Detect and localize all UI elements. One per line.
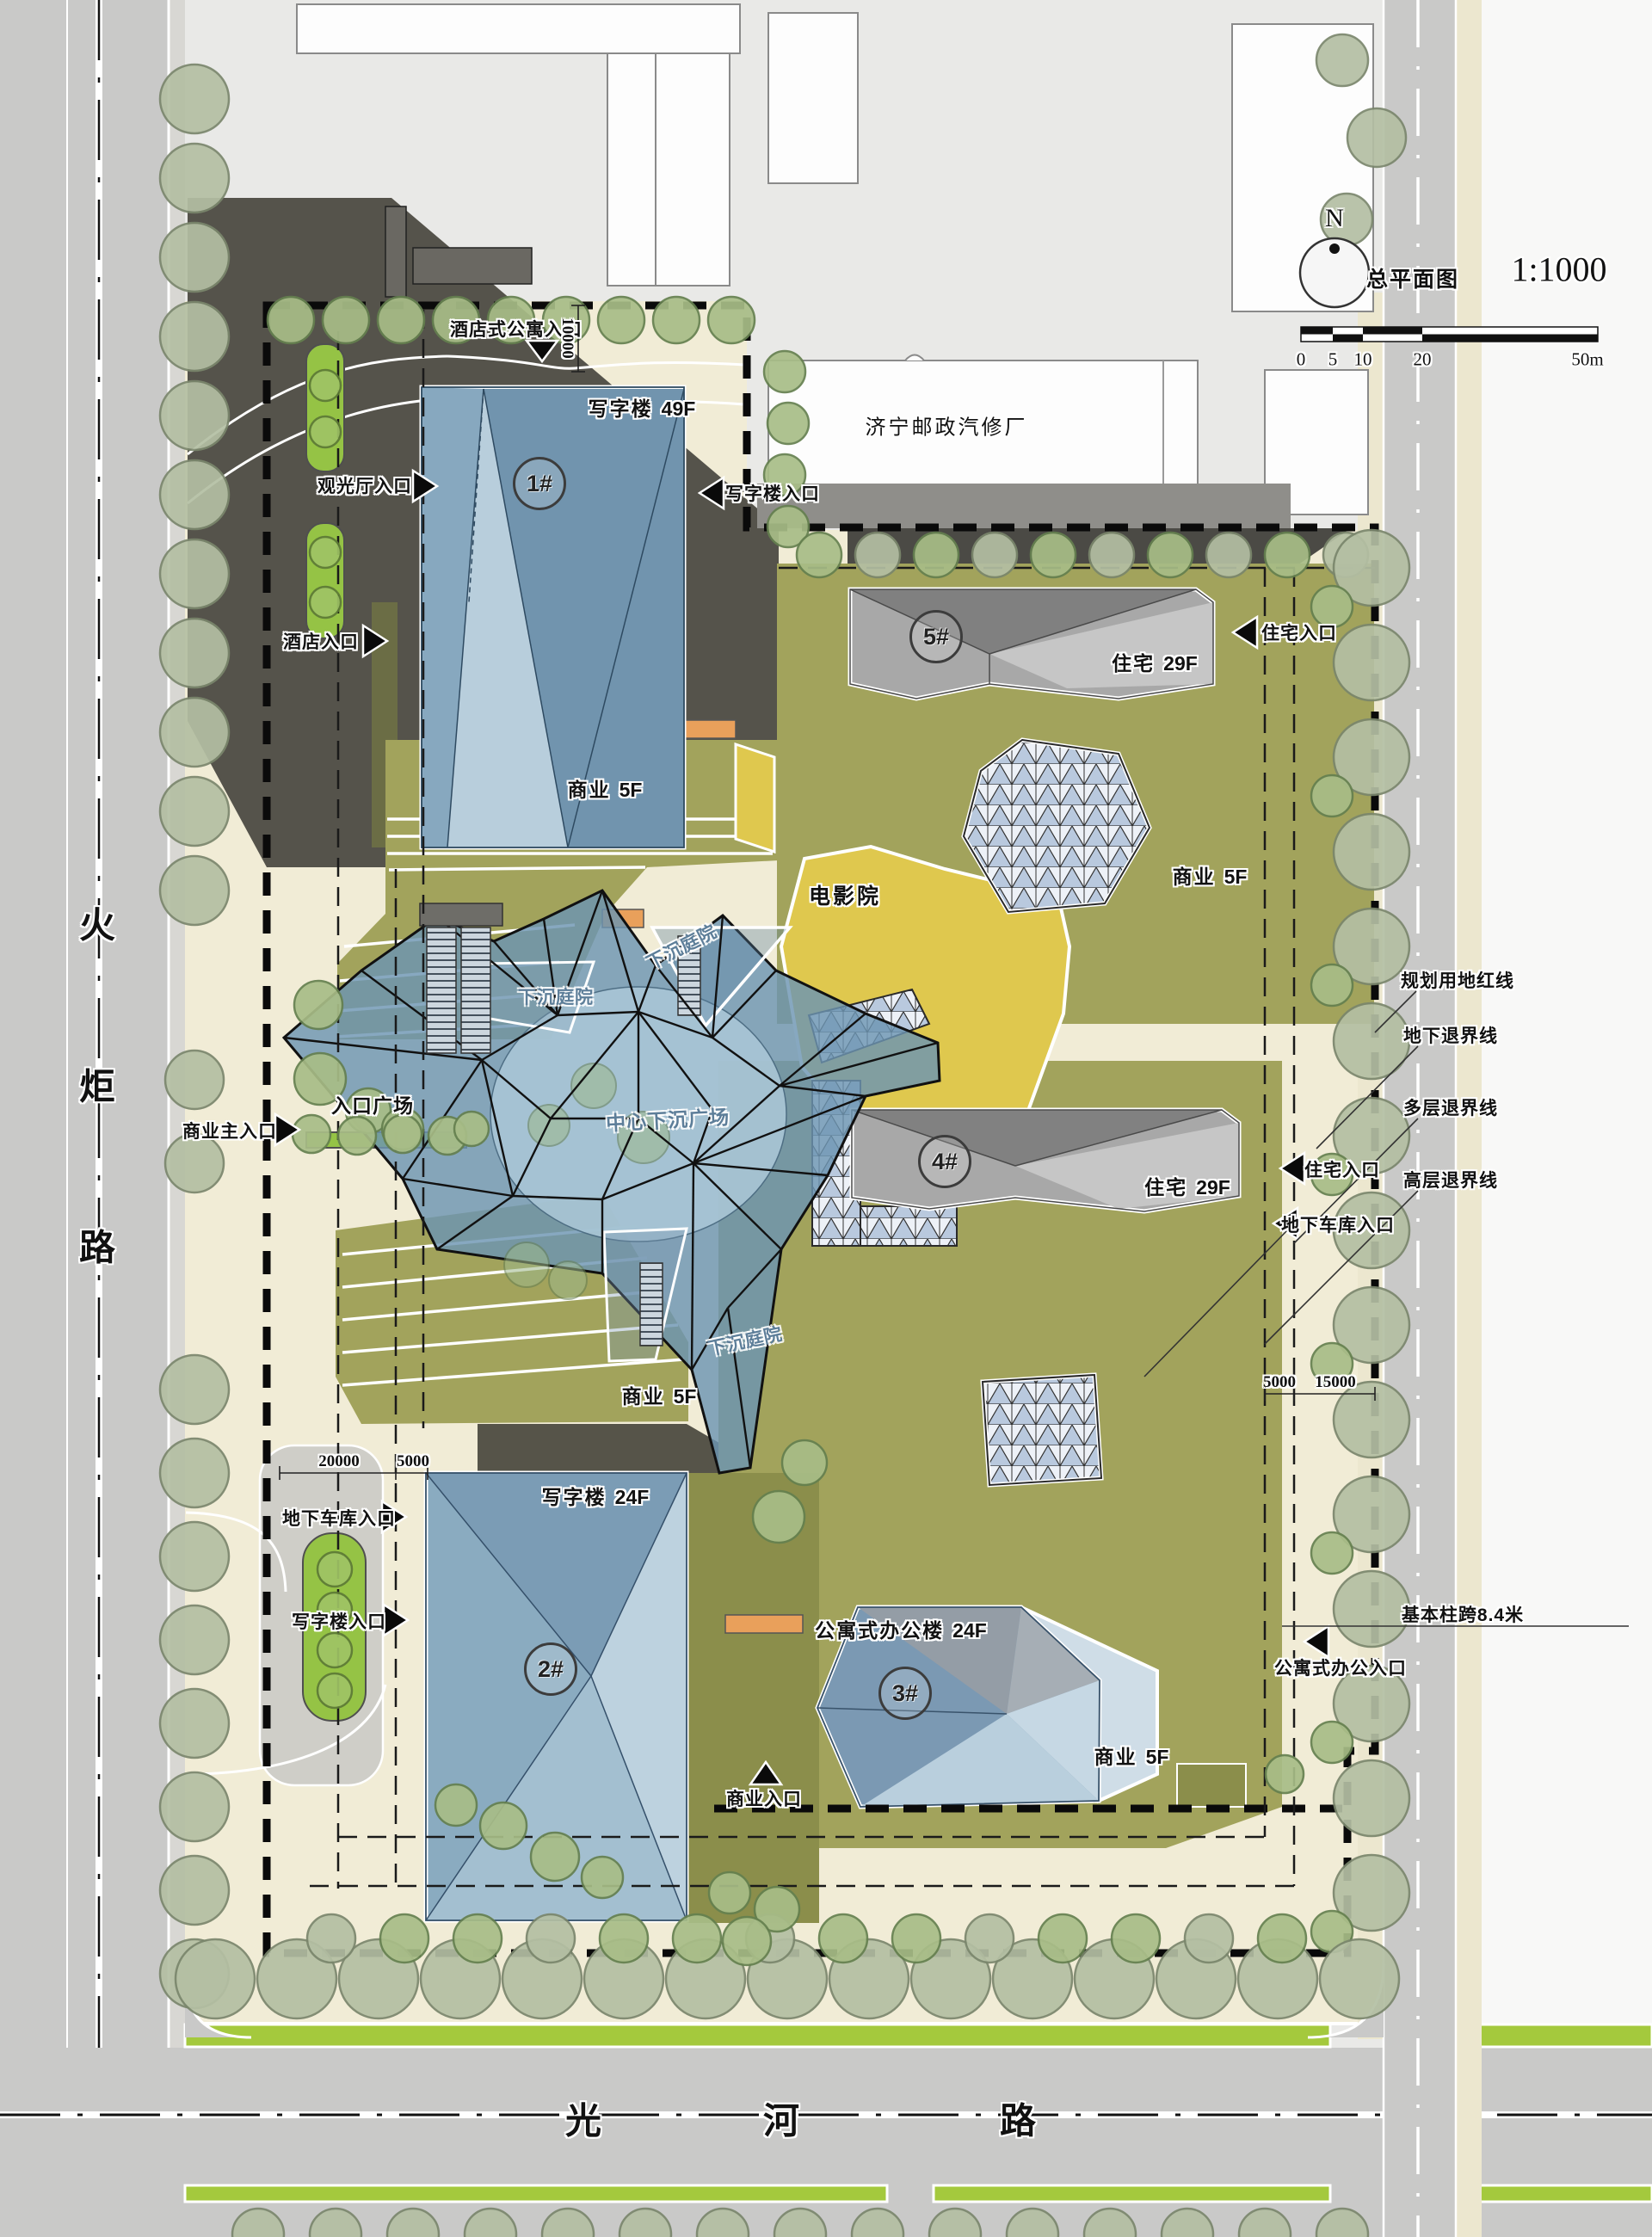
tree	[310, 416, 341, 447]
building-5	[850, 589, 1213, 699]
scale-tick-5: 5	[1328, 349, 1338, 371]
tree	[160, 460, 229, 529]
tree	[1112, 1914, 1160, 1963]
entrance-office-sw: 写字楼入口	[292, 1608, 386, 1634]
tree	[782, 1440, 827, 1485]
tree	[378, 297, 424, 343]
entrance-commercial-main: 商业主入口	[182, 1118, 277, 1143]
tree	[310, 537, 341, 568]
tree	[165, 1051, 224, 1109]
road-south-char-1: 光	[565, 2092, 601, 2145]
tree	[1039, 1914, 1087, 1963]
scale-tick-50m: 50m	[1571, 349, 1603, 371]
tree	[1311, 964, 1353, 1006]
tree	[708, 297, 755, 343]
building-2-id: 2#	[524, 1642, 577, 1696]
tree	[1334, 814, 1409, 890]
tree	[1316, 34, 1368, 86]
building-3-id: 3#	[878, 1667, 932, 1720]
scale-tick-20: 20	[1414, 349, 1432, 371]
building-4-use: 住宅29F	[1144, 1171, 1230, 1200]
tree	[1334, 1760, 1409, 1836]
tree	[855, 533, 900, 577]
label-multistorey-setback: 多层退界线	[1403, 1094, 1498, 1120]
cinema-label: 电影院	[809, 879, 881, 910]
entrance-residence-ne: 住宅入口	[1261, 619, 1337, 645]
scale-tick-0: 0	[1297, 349, 1306, 371]
tree	[160, 619, 229, 687]
tree	[160, 1355, 229, 1424]
tree	[160, 65, 229, 133]
tree	[1320, 1939, 1399, 2018]
verge-north	[185, 2024, 1330, 2047]
tree	[673, 1914, 721, 1963]
tree	[160, 144, 229, 213]
tree	[598, 297, 644, 343]
entrance-plaza: 入口广场	[331, 1089, 414, 1118]
tree	[1334, 625, 1409, 700]
building-1-use: 写字楼49F	[589, 392, 696, 422]
tree	[723, 1917, 771, 1965]
entrance-residence-e: 住宅入口	[1304, 1156, 1380, 1182]
tree	[582, 1857, 623, 1898]
tree	[160, 539, 229, 608]
dim-5000-e: 5000	[1263, 1373, 1296, 1392]
tree	[1311, 775, 1353, 817]
factory-name: 济宁邮政汽修厂	[866, 410, 1028, 441]
tree	[310, 370, 341, 401]
tree	[767, 403, 809, 444]
tree	[1206, 533, 1251, 577]
road-west-char-3: 路	[79, 1219, 115, 1272]
tree	[310, 587, 341, 618]
north-letter: N	[1325, 204, 1344, 233]
tree	[454, 1112, 489, 1146]
tree	[268, 297, 314, 343]
tree	[1334, 1571, 1409, 1647]
tree	[384, 1115, 422, 1153]
dim-10000: 10000	[558, 317, 576, 359]
tree	[1089, 533, 1134, 577]
tree	[709, 1872, 750, 1913]
tree	[160, 1772, 229, 1841]
tree	[176, 1939, 255, 2018]
building-1	[422, 387, 684, 847]
entrance-office-ne: 写字楼入口	[725, 480, 820, 506]
tree	[797, 533, 841, 577]
tree	[160, 302, 229, 371]
tree	[293, 1115, 330, 1153]
tree	[453, 1914, 502, 1963]
north-arrow	[1300, 238, 1369, 307]
commercial-label-se: 商业5F	[1094, 1741, 1169, 1770]
tree	[1311, 1722, 1353, 1763]
tree	[1185, 1914, 1233, 1963]
grand-stair	[420, 903, 502, 1053]
tree	[317, 1552, 352, 1587]
tree	[653, 297, 700, 343]
scale-bar	[1301, 327, 1598, 342]
label-column-span: 基本柱跨8.4米	[1402, 1601, 1524, 1627]
tree	[819, 1914, 867, 1963]
tree	[480, 1803, 527, 1849]
commercial-label-sw: 商业5F	[622, 1380, 697, 1409]
tree	[1266, 1755, 1304, 1793]
tree	[531, 1833, 579, 1881]
tree	[1347, 108, 1406, 167]
tree	[965, 1914, 1014, 1963]
tree	[160, 1522, 229, 1591]
tree	[294, 981, 342, 1029]
tree	[435, 1784, 477, 1826]
commercial-label-ne: 商业5F	[1173, 860, 1248, 890]
commercial-label-nw: 商业5F	[568, 773, 643, 803]
tree	[160, 381, 229, 450]
sunken-courtyard-w: 下沉庭院	[518, 983, 594, 1009]
entrance-commercial-s: 商业入口	[726, 1785, 802, 1811]
tree	[307, 1914, 355, 1963]
building-3-use: 公寓式办公楼24F	[815, 1614, 987, 1643]
label-highrise-setback: 高层退界线	[1403, 1167, 1498, 1192]
building-4-id: 4#	[918, 1135, 971, 1188]
tree	[914, 533, 959, 577]
road-south-char-3: 路	[1000, 2092, 1036, 2145]
median-green-2	[934, 2185, 1330, 2202]
escalator-s	[640, 1263, 663, 1346]
tree	[1265, 533, 1310, 577]
dim-20000: 20000	[318, 1452, 360, 1471]
entrance-apartment-office-se: 公寓式办公入口	[1274, 1655, 1407, 1680]
entrance-garage-e: 地下车库入口	[1281, 1211, 1395, 1237]
tree	[764, 351, 805, 392]
building-1-id: 1#	[513, 457, 566, 510]
building-5-id: 5#	[909, 610, 963, 663]
tree	[160, 698, 229, 767]
bridge-orange-3	[725, 1615, 803, 1633]
tree	[323, 297, 369, 343]
label-underground-setback: 地下退界线	[1403, 1022, 1498, 1048]
tree	[160, 777, 229, 846]
tree	[160, 856, 229, 925]
plan-title: 总平面图	[1366, 262, 1459, 293]
tree	[160, 1856, 229, 1925]
tree	[892, 1914, 940, 1963]
tree	[317, 1633, 352, 1667]
tree	[1148, 533, 1193, 577]
tree	[600, 1914, 648, 1963]
dim-5000-w: 5000	[397, 1452, 429, 1471]
tree	[972, 533, 1017, 577]
tree	[1311, 1532, 1353, 1574]
tree	[527, 1914, 575, 1963]
tree	[317, 1673, 352, 1708]
tree	[380, 1914, 428, 1963]
tree	[160, 223, 229, 292]
road-west-char-2: 炬	[79, 1058, 115, 1111]
building-2-use: 写字楼24F	[542, 1481, 650, 1510]
entrance-hotel: 酒店入口	[283, 628, 359, 654]
road-west-char-1: 火	[79, 897, 115, 949]
tree	[1334, 1003, 1409, 1079]
site-plan: N 总平面图 1:1000 0 5 10 20 50m 火 炬 路 光 河 路 …	[0, 0, 1652, 2237]
scale-tick-10: 10	[1354, 349, 1372, 371]
dim-15000: 15000	[1315, 1373, 1356, 1392]
road-west	[0, 0, 185, 2237]
tree	[753, 1491, 804, 1543]
entrance-observation-hall: 观光厅入口	[317, 472, 412, 498]
building-5-use: 住宅29F	[1112, 647, 1198, 676]
scale-text: 1:1000	[1511, 250, 1606, 290]
tree	[1031, 533, 1076, 577]
entrance-garage-sw: 地下车库入口	[282, 1505, 396, 1531]
road-south-char-2: 河	[763, 2092, 799, 2145]
label-red-line: 规划用地红线	[1401, 967, 1514, 993]
tree	[160, 1439, 229, 1507]
tree	[160, 1605, 229, 1674]
tree	[338, 1117, 376, 1155]
median-green-1	[185, 2185, 887, 2202]
tree	[160, 1689, 229, 1758]
tree	[1258, 1914, 1306, 1963]
